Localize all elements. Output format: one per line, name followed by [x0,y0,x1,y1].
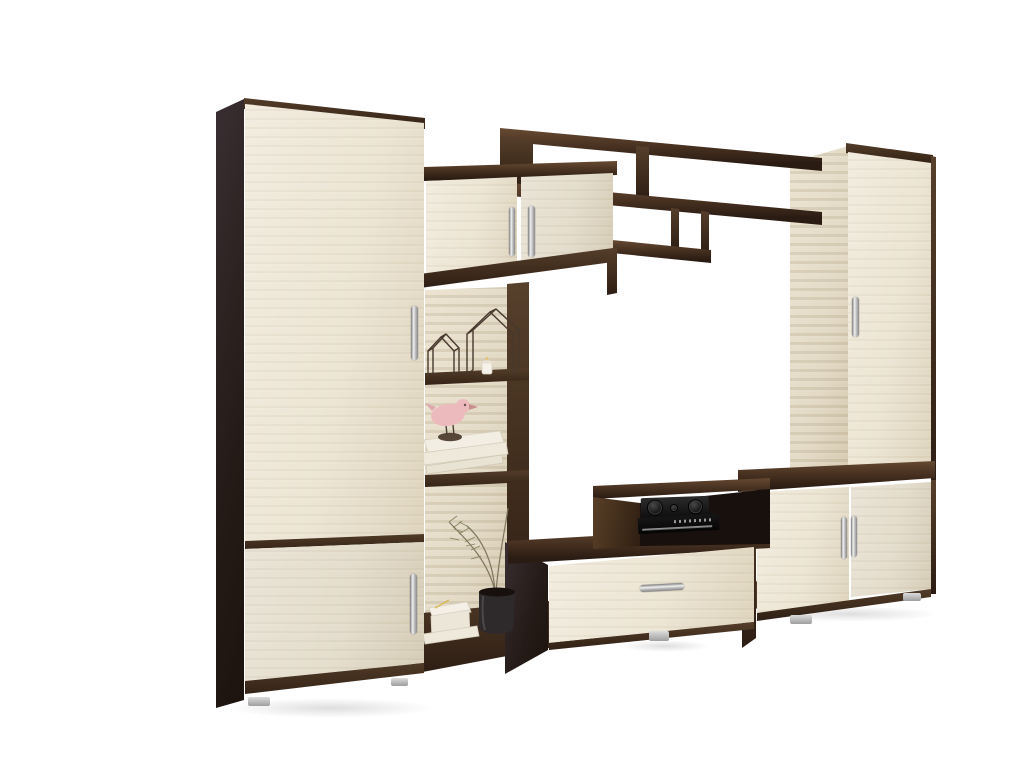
decor-plant-vase-books [415,500,520,650]
display-cabinet-left-handle [509,207,515,256]
lower-cabinet-right-handle [851,516,857,557]
dried-plant [449,508,508,592]
right-wardrobe-side-panel [789,144,850,478]
decor-wire-houses [425,300,525,376]
floor-shadow [620,640,710,652]
right-wardrobe-door [847,150,933,476]
dvd-player-buttons [674,518,714,523]
furniture-photo: Wall unit furniture set product photo [0,0,1024,768]
receiver-knob-left [648,500,662,514]
cabinet-foot [903,593,921,601]
right-wardrobe-right-edge [930,154,938,502]
book-stack [422,431,508,474]
left-wardrobe-side-panel [214,96,246,712]
wall-shelf-box-bottom [612,238,713,266]
cabinet-foot [790,615,812,624]
receiver-knob-center [671,505,677,511]
wardrobe-foot [248,697,270,706]
lower-cabinet-right-door [849,479,933,601]
wall-shelf-box-right-side [701,209,711,255]
left-wardrobe-lower-door [243,541,426,686]
media-shelf-left-side [591,495,642,552]
tv-stand-foot [649,631,669,641]
display-cabinet-left-door [424,175,519,276]
right-wardrobe-handle [852,297,859,337]
display-cabinet-right-handle [528,206,535,257]
lower-cabinet-right-edge [931,480,936,594]
wall-shelf-divider [636,144,650,202]
vase [479,588,515,635]
decor-bird-and-books [420,396,510,482]
dvd-player-tray-edge [642,525,712,531]
wardrobe-foot [391,678,408,686]
display-cabinet-right-edge [605,246,619,297]
left-wardrobe-lower-handle [410,574,417,634]
wall-shelf-box-left-side [671,206,681,252]
decor-candle [482,357,492,374]
lower-cabinet-left-handle [841,517,847,559]
receiver-knob-right [689,500,702,513]
left-wardrobe-upper-handle [411,306,418,360]
left-wardrobe-upper-door [243,100,426,556]
